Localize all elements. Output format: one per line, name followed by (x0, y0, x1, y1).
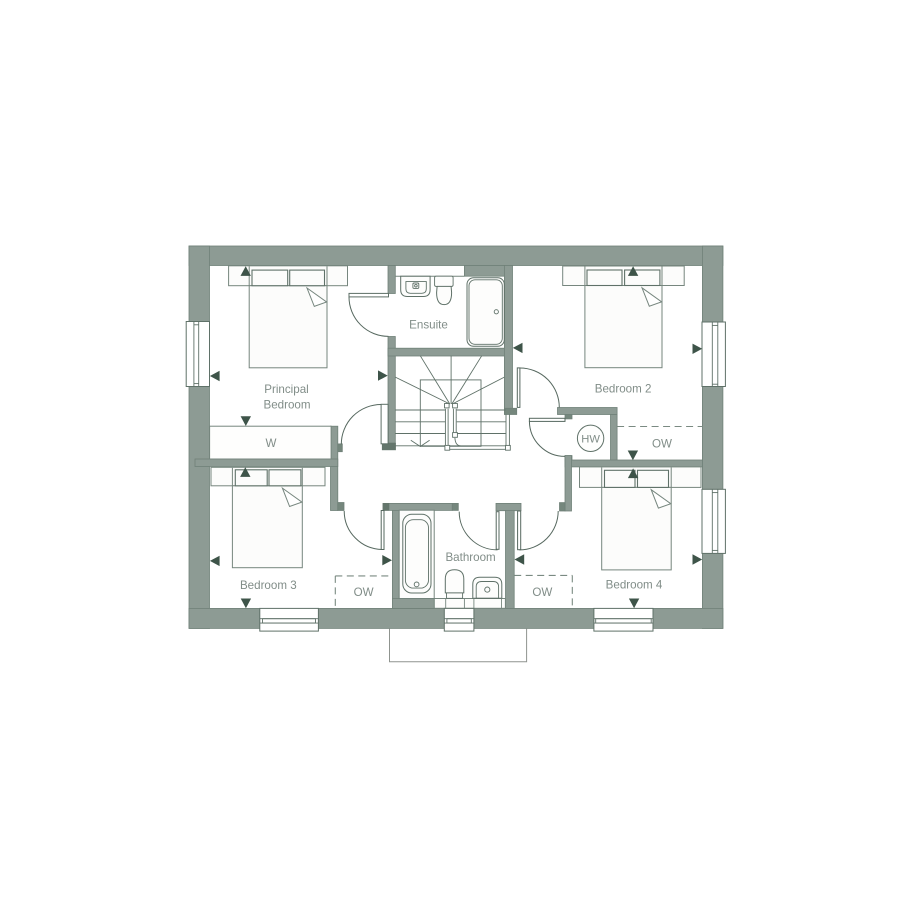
svg-text:OW: OW (532, 586, 552, 599)
svg-text:Principal: Principal (264, 383, 308, 396)
svg-text:OW: OW (354, 586, 374, 599)
svg-text:Ensuite: Ensuite (409, 318, 448, 331)
svg-text:Bedroom: Bedroom (263, 398, 310, 411)
svg-text:Bedroom 3: Bedroom 3 (240, 579, 297, 592)
svg-text:HW: HW (581, 433, 600, 445)
svg-text:Bedroom 2: Bedroom 2 (595, 382, 652, 395)
svg-text:Bedroom 4: Bedroom 4 (606, 579, 663, 592)
svg-text:Bathroom: Bathroom (445, 551, 495, 564)
svg-text:W: W (266, 437, 277, 450)
svg-text:OW: OW (652, 437, 672, 450)
